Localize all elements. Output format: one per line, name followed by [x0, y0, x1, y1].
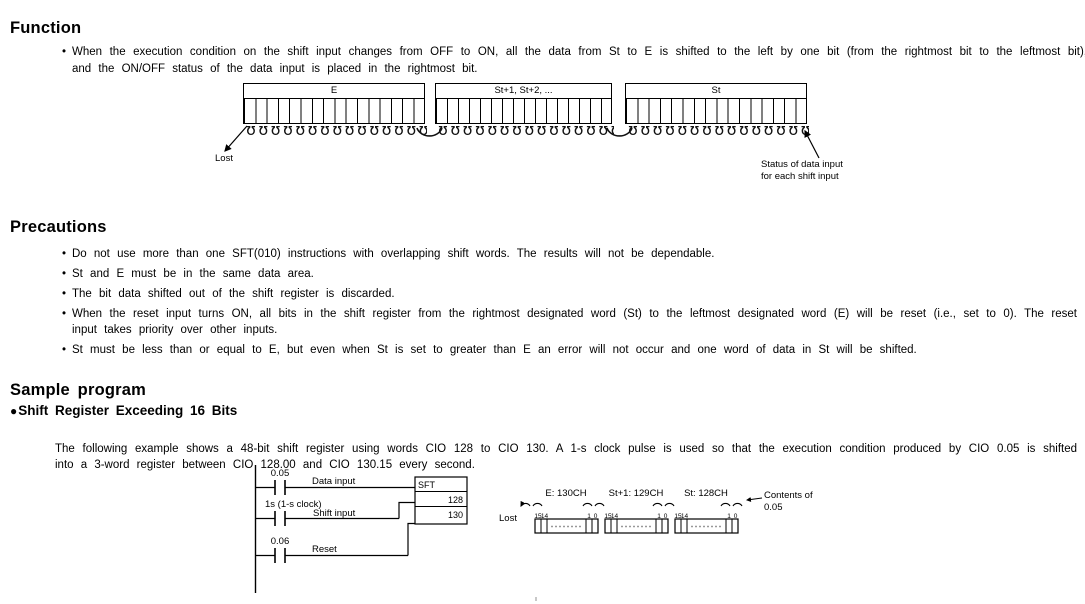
bit-label-14: 14 — [611, 513, 619, 520]
precaution-item: •When the reset input turns ON, all bits… — [62, 306, 1077, 338]
loop-connector-1 — [417, 128, 442, 136]
manual-page: Function •When the execution condition o… — [0, 0, 1085, 604]
shift-arc — [595, 503, 604, 506]
register-word-e-label: E: 130CH — [545, 488, 586, 499]
status-label: Status of data input for each shift inpu… — [761, 159, 843, 182]
sft-mnemonic: SFT — [418, 480, 436, 490]
lost-label: Lost — [215, 153, 233, 165]
precautions-heading: Precautions — [10, 218, 107, 237]
sft-operand-e: 130 — [448, 510, 463, 520]
function-bullet-text: When the execution condition on the shif… — [72, 46, 1085, 75]
bit-label-0: 0 — [594, 513, 598, 520]
precaution-item: •St must be less than or equal to E, but… — [62, 342, 1077, 358]
section-bullet-icon: ● — [10, 404, 17, 418]
bullet-icon: • — [62, 286, 66, 302]
status-arrow — [805, 131, 819, 158]
bit-label-0: 0 — [664, 513, 668, 520]
precaution-text-1: Do not use more than one SFT(010) instru… — [72, 248, 714, 260]
status-label-line1: Status of data input — [761, 159, 843, 171]
status-label-line2: for each shift input — [761, 171, 843, 183]
precaution-text-2: St and E must be in the same data area. — [72, 268, 314, 280]
sft-operand-st: 128 — [448, 495, 463, 505]
contact1-address: 0.05 — [271, 468, 290, 479]
bit-label-1: 1 — [587, 513, 591, 520]
contents-arrow — [747, 498, 762, 500]
rung1-label: Data input — [312, 476, 356, 487]
rung3-step — [408, 524, 415, 556]
bit-label-14: 14 — [681, 513, 689, 520]
loop-connector-2 — [607, 128, 632, 136]
precaution-item: •Do not use more than one SFT(010) instr… — [62, 246, 1077, 262]
word-box-e-label: E — [244, 84, 424, 99]
bullet-icon: • — [62, 44, 66, 61]
precautions-list: •Do not use more than one SFT(010) instr… — [62, 246, 1077, 362]
register-word-st-label: St: 128CH — [684, 488, 728, 499]
shift-arc — [733, 503, 742, 506]
bullet-icon: • — [62, 306, 66, 322]
register-word-e: 15 14 1 0 — [534, 513, 598, 533]
rung2-label: Shift input — [313, 508, 356, 519]
precaution-text-3: The bit data shifted out of the shift re… — [72, 288, 395, 300]
register-contents-diagram: E: 130CH St+1: 129CH St: 128CH Lost 15 1… — [488, 485, 838, 540]
precaution-text-5: St must be less than or equal to E, but … — [72, 344, 917, 356]
sample-description: The following example shows a 48-bit shi… — [55, 441, 1077, 474]
sample-program-heading: Sample program — [10, 381, 146, 400]
lost-arrow — [225, 126, 247, 151]
sample-subheading: ● Shift Register Exceeding 16 Bits — [10, 403, 237, 418]
rung2-step — [399, 503, 415, 519]
shift-arc — [721, 503, 730, 506]
sample-subheading-text: Shift Register Exceeding 16 Bits — [18, 403, 237, 418]
shift-arc — [653, 503, 662, 506]
bullet-icon: • — [62, 266, 66, 282]
bit-label-14: 14 — [541, 513, 549, 520]
bit-label-1: 1 — [657, 513, 661, 520]
shift-arc — [533, 503, 542, 506]
shift-diagram-arrows — [195, 118, 855, 188]
contact3-address: 0.06 — [271, 536, 290, 547]
bullet-icon: • — [62, 342, 66, 358]
bit-label-0: 0 — [734, 513, 738, 520]
precaution-item: •The bit data shifted out of the shift r… — [62, 286, 1077, 302]
bullet-icon: • — [62, 246, 66, 262]
word-box-mid-label: St+1, St+2, ... — [436, 84, 611, 99]
ladder-diagram: 0.05 Data input 1s (1-s clock) Shift inp… — [250, 460, 480, 600]
register-word-st1: 15 14 1 0 — [604, 513, 668, 533]
register-lost-label: Lost — [499, 513, 517, 524]
function-heading: Function — [10, 19, 81, 38]
register-word-st: 15 14 1 0 — [674, 513, 738, 533]
precaution-item: •St and E must be in the same data area. — [62, 266, 1077, 282]
shift-arc — [665, 503, 674, 506]
shift-arc — [583, 503, 592, 506]
contents-label-line1: Contents of — [764, 490, 813, 501]
rung3-label: Reset — [312, 544, 337, 555]
bit-label-1: 1 — [727, 513, 731, 520]
page-artifact-dot — [535, 597, 537, 601]
precaution-text-4: When the reset input turns ON, all bits … — [72, 308, 1077, 336]
function-bullet: •When the execution condition on the shi… — [62, 44, 1085, 78]
contents-label-line2: 0.05 — [764, 502, 783, 513]
word-box-st-label: St — [626, 84, 806, 99]
register-word-st1-label: St+1: 129CH — [609, 488, 664, 499]
shift-arc — [521, 503, 530, 506]
